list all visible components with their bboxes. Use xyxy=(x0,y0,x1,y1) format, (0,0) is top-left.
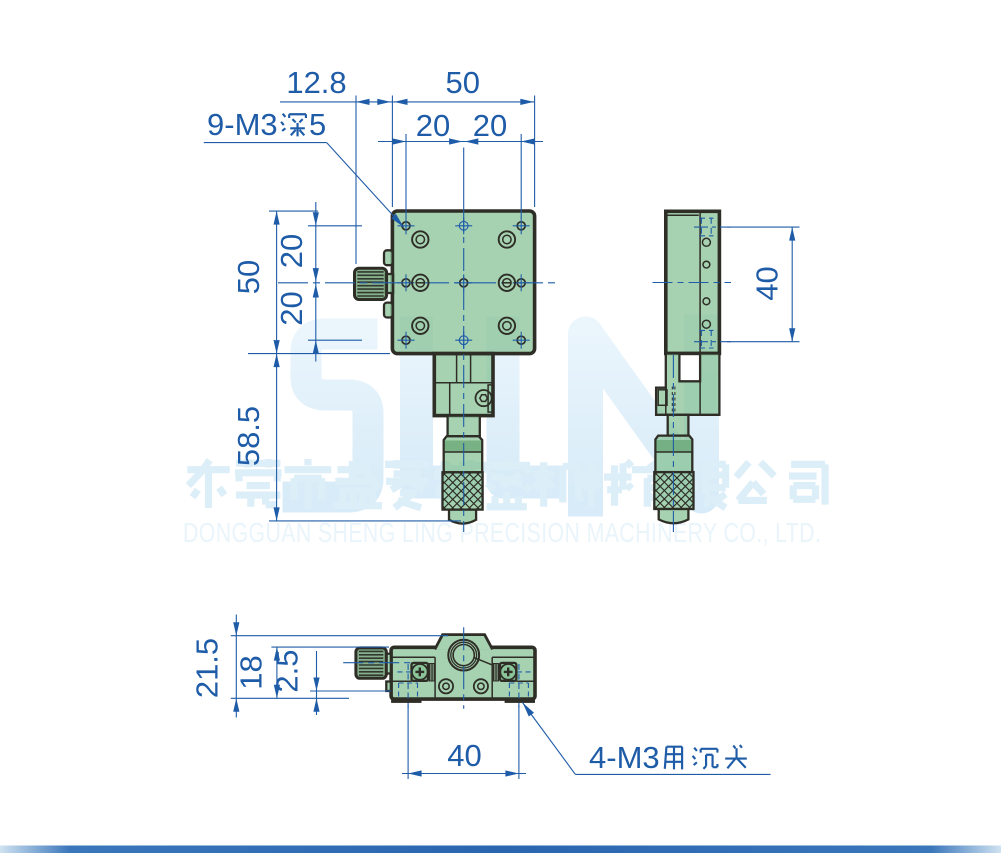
svg-text:58.5: 58.5 xyxy=(231,406,266,466)
svg-text:20: 20 xyxy=(274,291,309,325)
svg-text:20: 20 xyxy=(274,234,309,268)
svg-text:40: 40 xyxy=(447,738,481,773)
svg-text:50: 50 xyxy=(446,65,480,100)
svg-text:21.5: 21.5 xyxy=(190,638,225,698)
svg-text:40: 40 xyxy=(750,266,785,300)
svg-text:50: 50 xyxy=(231,260,266,294)
svg-text:20: 20 xyxy=(416,108,450,143)
svg-text:12.8: 12.8 xyxy=(286,65,346,100)
svg-text:2.5: 2.5 xyxy=(270,649,305,692)
svg-text:18: 18 xyxy=(234,655,269,689)
svg-text:DONGGUAN SHENG LING PRECISION: DONGGUAN SHENG LING PRECISION MACHINERY … xyxy=(183,517,821,548)
svg-text:4-M3: 4-M3 xyxy=(589,740,660,775)
svg-text:5: 5 xyxy=(309,107,326,142)
svg-text:20: 20 xyxy=(473,108,507,143)
svg-text:9-M3: 9-M3 xyxy=(207,107,278,142)
